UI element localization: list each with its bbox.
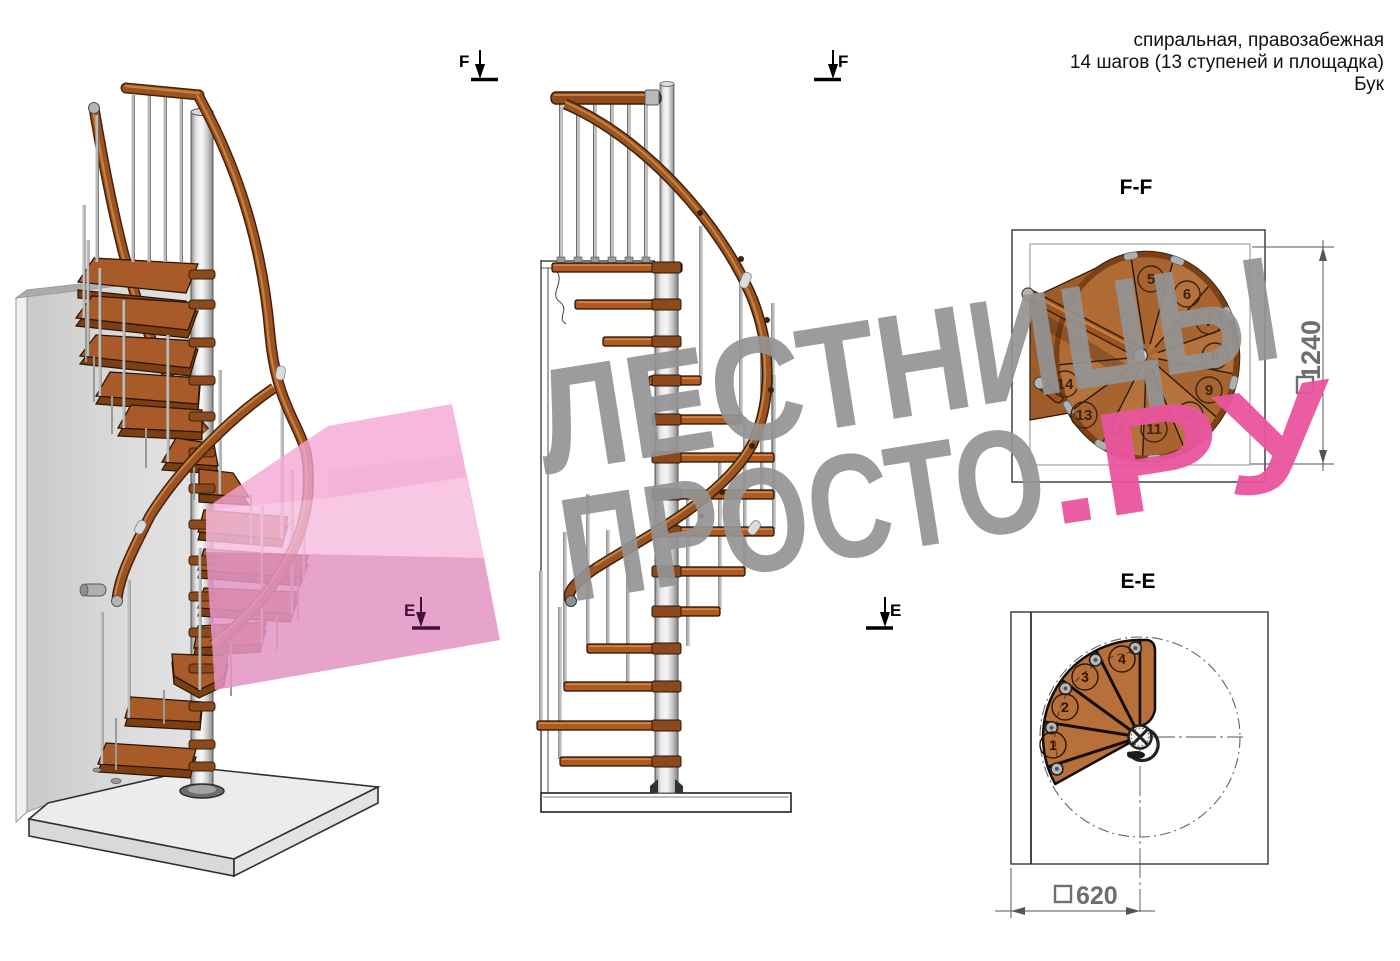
- svg-text:E-E: E-E: [1120, 570, 1155, 593]
- svg-text:2: 2: [1061, 699, 1069, 715]
- svg-text:F-F: F-F: [1120, 176, 1153, 199]
- svg-text:спиральная, правозабежная: спиральная, правозабежная: [1134, 30, 1384, 51]
- svg-text:14 шагов (13 ступеней и площад: 14 шагов (13 ступеней и площадка): [1070, 52, 1384, 73]
- svg-text:F: F: [459, 52, 469, 71]
- svg-text:1: 1: [1049, 737, 1057, 753]
- svg-text:F: F: [838, 52, 848, 71]
- svg-text:3: 3: [1081, 669, 1089, 685]
- svg-text:E: E: [890, 601, 901, 620]
- svg-text:620: 620: [1076, 882, 1118, 910]
- svg-text:E: E: [404, 601, 415, 620]
- svg-text:4: 4: [1118, 651, 1126, 667]
- svg-text:Бук: Бук: [1354, 74, 1385, 95]
